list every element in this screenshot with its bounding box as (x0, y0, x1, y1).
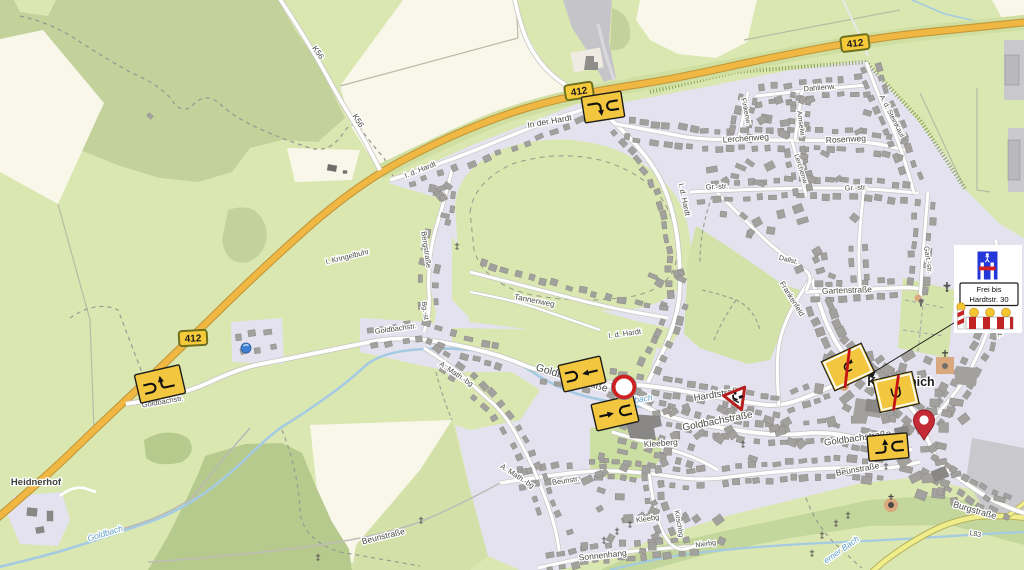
svg-text:Rosenweg: Rosenweg (826, 133, 867, 145)
svg-text:412: 412 (184, 333, 202, 345)
svg-text:412: 412 (846, 38, 864, 51)
svg-text:Gr.-str.: Gr.-str. (844, 182, 867, 192)
svg-text:Heidnerhof: Heidnerhof (11, 477, 62, 488)
svg-text:Gr.-str.: Gr.-str. (705, 181, 728, 191)
svg-text:Hardtstr. 30: Hardtstr. 30 (969, 295, 1008, 304)
svg-text:Frei bis: Frei bis (977, 285, 1002, 294)
svg-text:Gartenstraße: Gartenstraße (822, 284, 873, 296)
